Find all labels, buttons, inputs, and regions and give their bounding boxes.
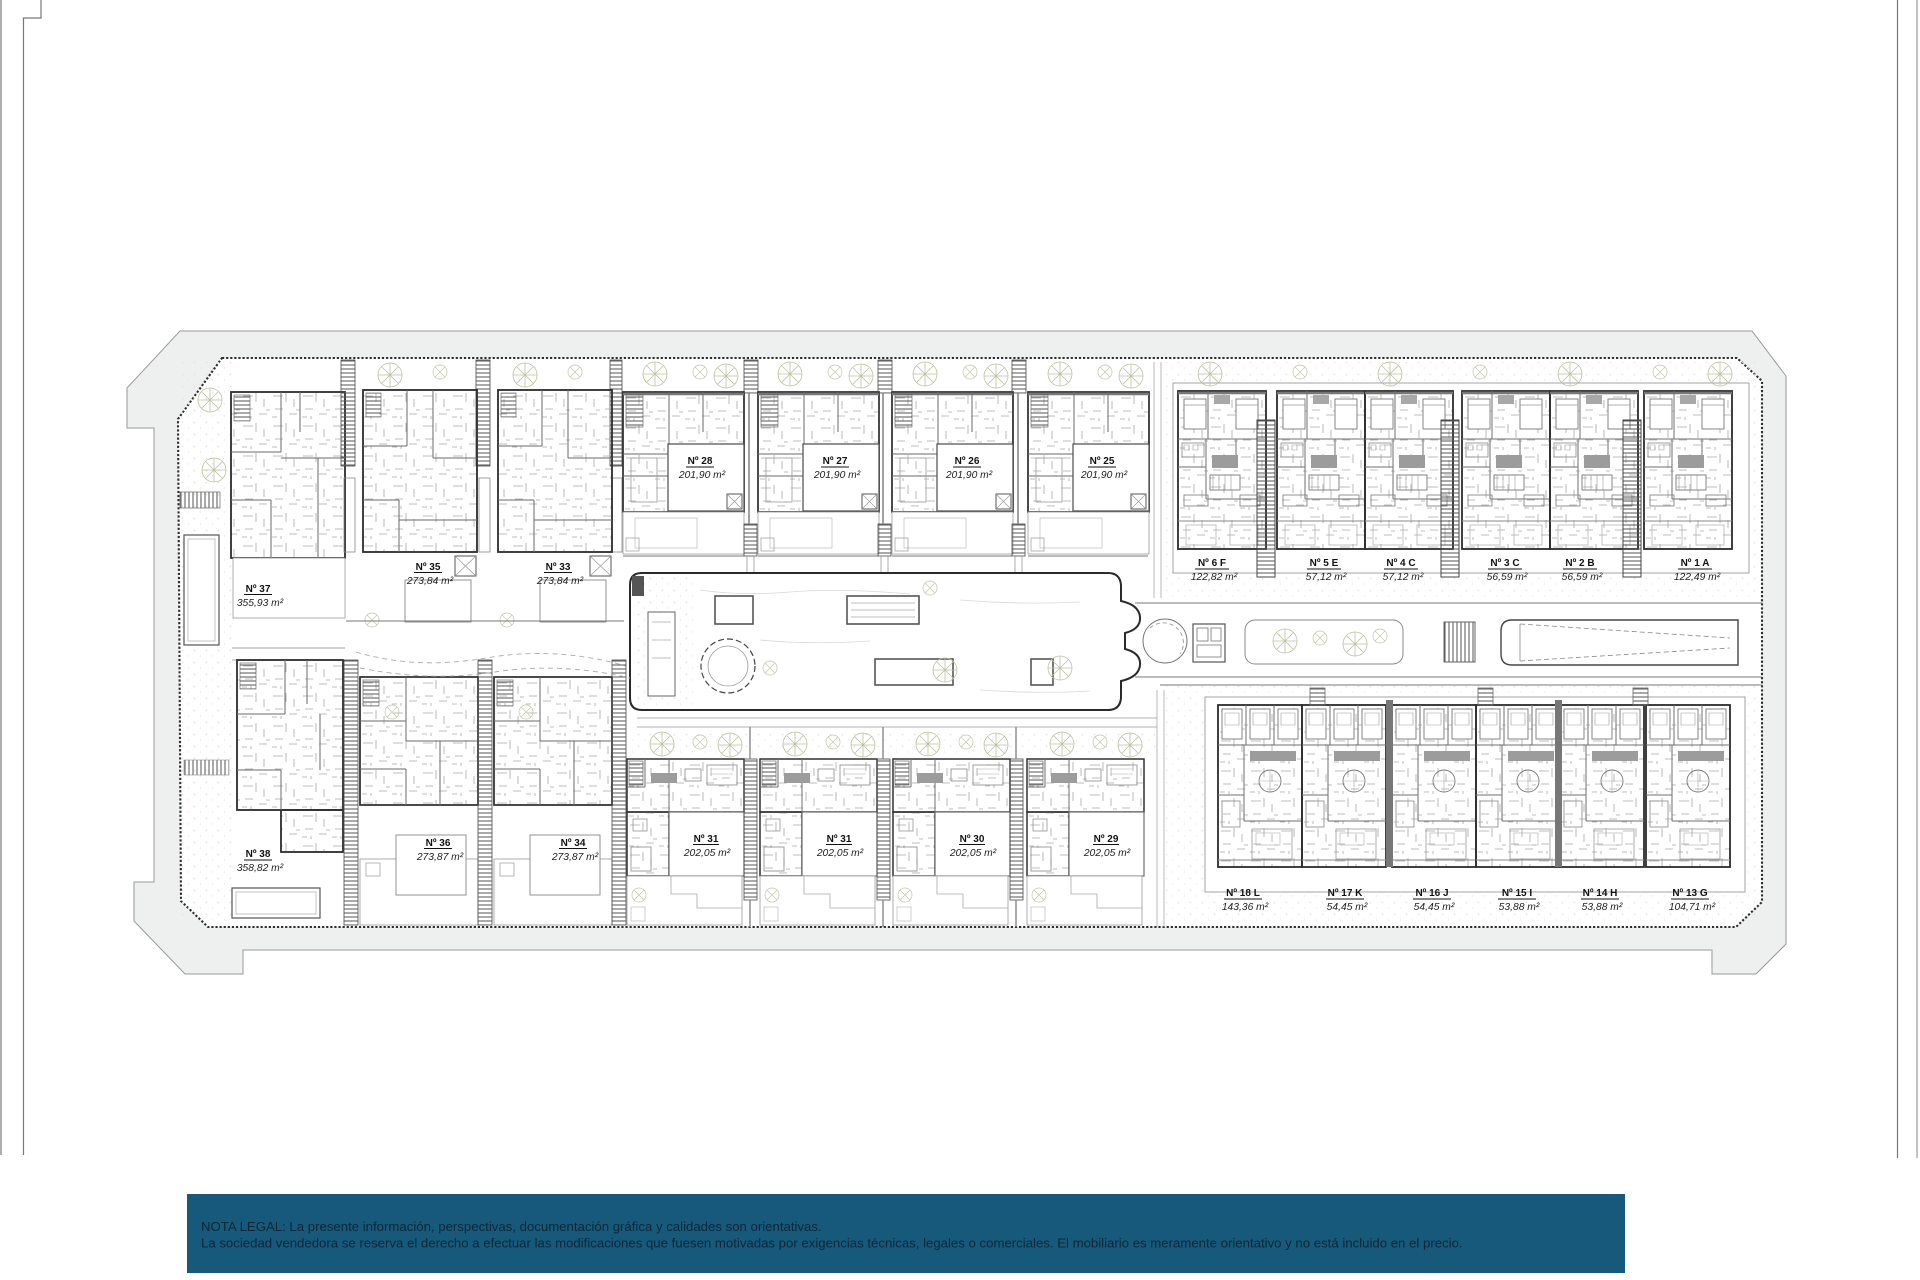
svg-text:Nº 25: Nº 25 bbox=[1090, 456, 1115, 467]
svg-text:Nº 17 K: Nº 17 K bbox=[1328, 888, 1364, 899]
svg-text:Nº 16 J: Nº 16 J bbox=[1415, 888, 1448, 899]
svg-text:53,88 m²: 53,88 m² bbox=[1499, 902, 1540, 913]
svg-text:Nº 36: Nº 36 bbox=[426, 838, 451, 849]
svg-text:Nº 18 L: Nº 18 L bbox=[1226, 888, 1260, 899]
svg-text:Nº 31: Nº 31 bbox=[827, 834, 852, 845]
svg-text:202,05 m²: 202,05 m² bbox=[1083, 848, 1131, 859]
svg-text:273,84 m²: 273,84 m² bbox=[406, 576, 454, 587]
svg-text:201,90 m²: 201,90 m² bbox=[813, 470, 861, 481]
svg-text:Nº 1 A: Nº 1 A bbox=[1681, 558, 1710, 569]
svg-text:Nº 14 H: Nº 14 H bbox=[1583, 888, 1618, 899]
svg-text:57,12 m²: 57,12 m² bbox=[1306, 572, 1347, 583]
svg-text:Nº 37: Nº 37 bbox=[246, 584, 271, 595]
svg-text:Nº 27: Nº 27 bbox=[823, 456, 848, 467]
svg-text:355,93 m²: 355,93 m² bbox=[237, 598, 284, 609]
svg-text:Nº 6 F: Nº 6 F bbox=[1198, 558, 1226, 569]
svg-text:Nº 4 C: Nº 4 C bbox=[1386, 558, 1415, 569]
svg-text:Nº 31: Nº 31 bbox=[694, 834, 719, 845]
svg-text:Nº 34: Nº 34 bbox=[561, 838, 586, 849]
svg-text:Nº 2 B: Nº 2 B bbox=[1565, 558, 1594, 569]
svg-text:NOTA LEGAL: La presente inform: NOTA LEGAL: La presente información, per… bbox=[201, 1219, 822, 1234]
svg-text:Nº 26: Nº 26 bbox=[955, 456, 980, 467]
svg-text:La sociedad vendedora se reser: La sociedad vendedora se reserva el dere… bbox=[201, 1236, 1463, 1251]
svg-text:Nº 30: Nº 30 bbox=[960, 834, 985, 845]
svg-text:358,82 m²: 358,82 m² bbox=[237, 863, 284, 874]
svg-text:Nº 15 I: Nº 15 I bbox=[1502, 888, 1533, 899]
svg-text:273,87 m²: 273,87 m² bbox=[416, 852, 464, 863]
svg-text:Nº 5 E: Nº 5 E bbox=[1310, 558, 1339, 569]
svg-text:201,90 m²: 201,90 m² bbox=[945, 470, 993, 481]
svg-text:56,59 m²: 56,59 m² bbox=[1562, 572, 1603, 583]
svg-text:Nº 29: Nº 29 bbox=[1094, 834, 1119, 845]
svg-text:56,59 m²: 56,59 m² bbox=[1487, 572, 1528, 583]
svg-text:104,71 m²: 104,71 m² bbox=[1669, 902, 1716, 913]
svg-text:Nº 3 C: Nº 3 C bbox=[1490, 558, 1519, 569]
svg-text:Nº 38: Nº 38 bbox=[246, 849, 271, 860]
svg-text:57,12 m²: 57,12 m² bbox=[1383, 572, 1424, 583]
svg-text:202,05 m²: 202,05 m² bbox=[683, 848, 731, 859]
svg-text:122,49 m²: 122,49 m² bbox=[1674, 572, 1721, 583]
svg-text:Nº 35: Nº 35 bbox=[416, 562, 441, 573]
svg-text:53,88 m²: 53,88 m² bbox=[1582, 902, 1623, 913]
svg-text:202,05 m²: 202,05 m² bbox=[816, 848, 864, 859]
svg-text:122,82 m²: 122,82 m² bbox=[1191, 572, 1238, 583]
svg-text:54,45 m²: 54,45 m² bbox=[1414, 902, 1455, 913]
svg-text:Nº 13 G: Nº 13 G bbox=[1672, 888, 1708, 899]
svg-text:201,90 m²: 201,90 m² bbox=[1080, 470, 1128, 481]
svg-text:54,45 m²: 54,45 m² bbox=[1327, 902, 1368, 913]
svg-text:Nº 33: Nº 33 bbox=[546, 562, 571, 573]
svg-text:Nº 28: Nº 28 bbox=[688, 456, 713, 467]
svg-text:273,87 m²: 273,87 m² bbox=[551, 852, 599, 863]
svg-text:202,05 m²: 202,05 m² bbox=[949, 848, 997, 859]
svg-text:143,36 m²: 143,36 m² bbox=[1222, 902, 1269, 913]
svg-text:273,84 m²: 273,84 m² bbox=[536, 576, 584, 587]
svg-text:201,90 m²: 201,90 m² bbox=[678, 470, 726, 481]
